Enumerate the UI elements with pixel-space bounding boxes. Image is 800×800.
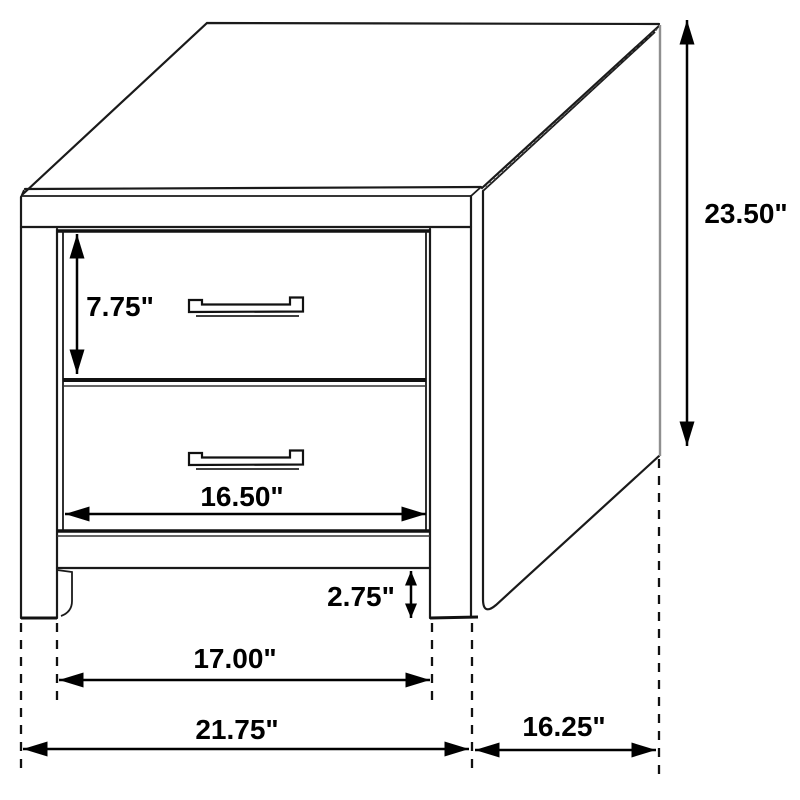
drawer-opening-width-label: 16.50" (200, 481, 283, 512)
top-right-edge-inner (483, 32, 655, 191)
dimension-between-legs-width: 17.00" (59, 643, 430, 680)
dimension-top-drawer-height: 7.75" (77, 234, 154, 374)
top-right-edge (482, 26, 659, 188)
drawer-1-handle (189, 298, 303, 317)
tabletop (21, 23, 659, 227)
fascia-right-bevel (471, 187, 481, 196)
handle-bar (189, 451, 303, 466)
overall-height-label: 23.50" (704, 198, 787, 229)
front-left-leg-side-face (57, 570, 72, 616)
tabletop-front-edge (25, 187, 481, 189)
dimension-overall-height: 23.50" (687, 20, 788, 446)
leg-height-label: 2.75" (327, 581, 395, 612)
overall-width-label: 21.75" (195, 714, 278, 745)
dimension-annotations: 23.50" 7.75" 16.50" 2.75" 17.00" 21.75" … (23, 20, 788, 750)
nightstand-diagram-svg: 23.50" 7.75" 16.50" 2.75" 17.00" 21.75" … (0, 0, 800, 800)
drawer-area (57, 231, 430, 568)
dimension-depth: 16.25" (475, 711, 656, 750)
dimension-leg-height: 2.75" (327, 571, 411, 618)
depth-label: 16.25" (522, 711, 605, 742)
top-drawer-height-label: 7.75" (86, 291, 154, 322)
dimension-overall-width: 21.75" (23, 714, 469, 749)
legs (21, 570, 478, 618)
side-panel-front-bottom-edge (483, 191, 659, 609)
front-right-leg-bottom (430, 617, 478, 618)
drawer-2-handle (189, 451, 303, 470)
between-legs-width-label: 17.00" (193, 643, 276, 674)
dimension-diagram: 23.50" 7.75" 16.50" 2.75" 17.00" 21.75" … (0, 0, 800, 800)
tabletop-back-edges (23, 23, 659, 194)
handle-bar (189, 298, 303, 313)
dimension-drawer-opening-width: 16.50" (65, 481, 426, 514)
nightstand-drawing (21, 23, 660, 776)
